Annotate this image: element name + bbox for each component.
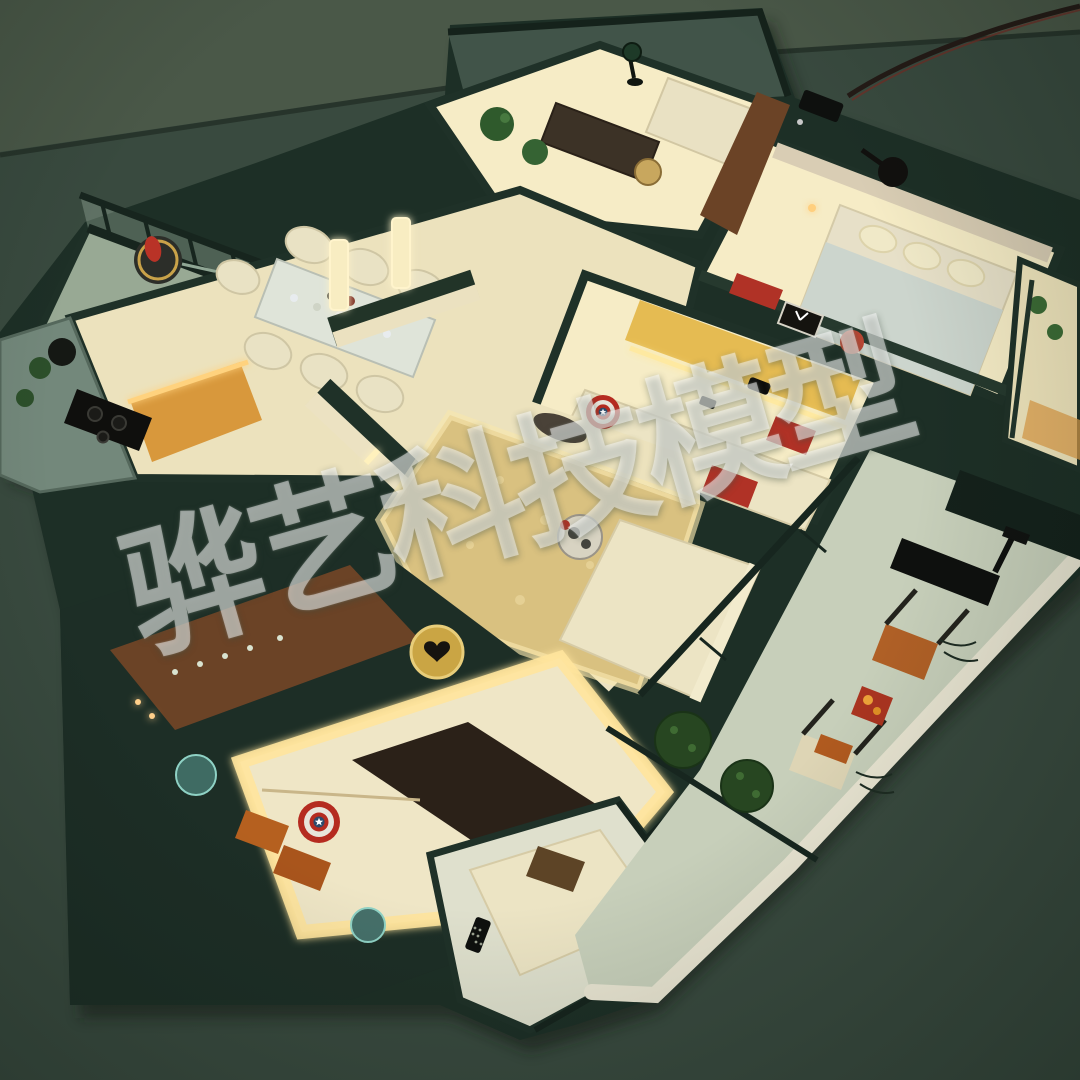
vignette-overlay xyxy=(0,0,1080,1080)
photo-of-apartment-model: 骅艺科技模型 xyxy=(0,0,1080,1080)
